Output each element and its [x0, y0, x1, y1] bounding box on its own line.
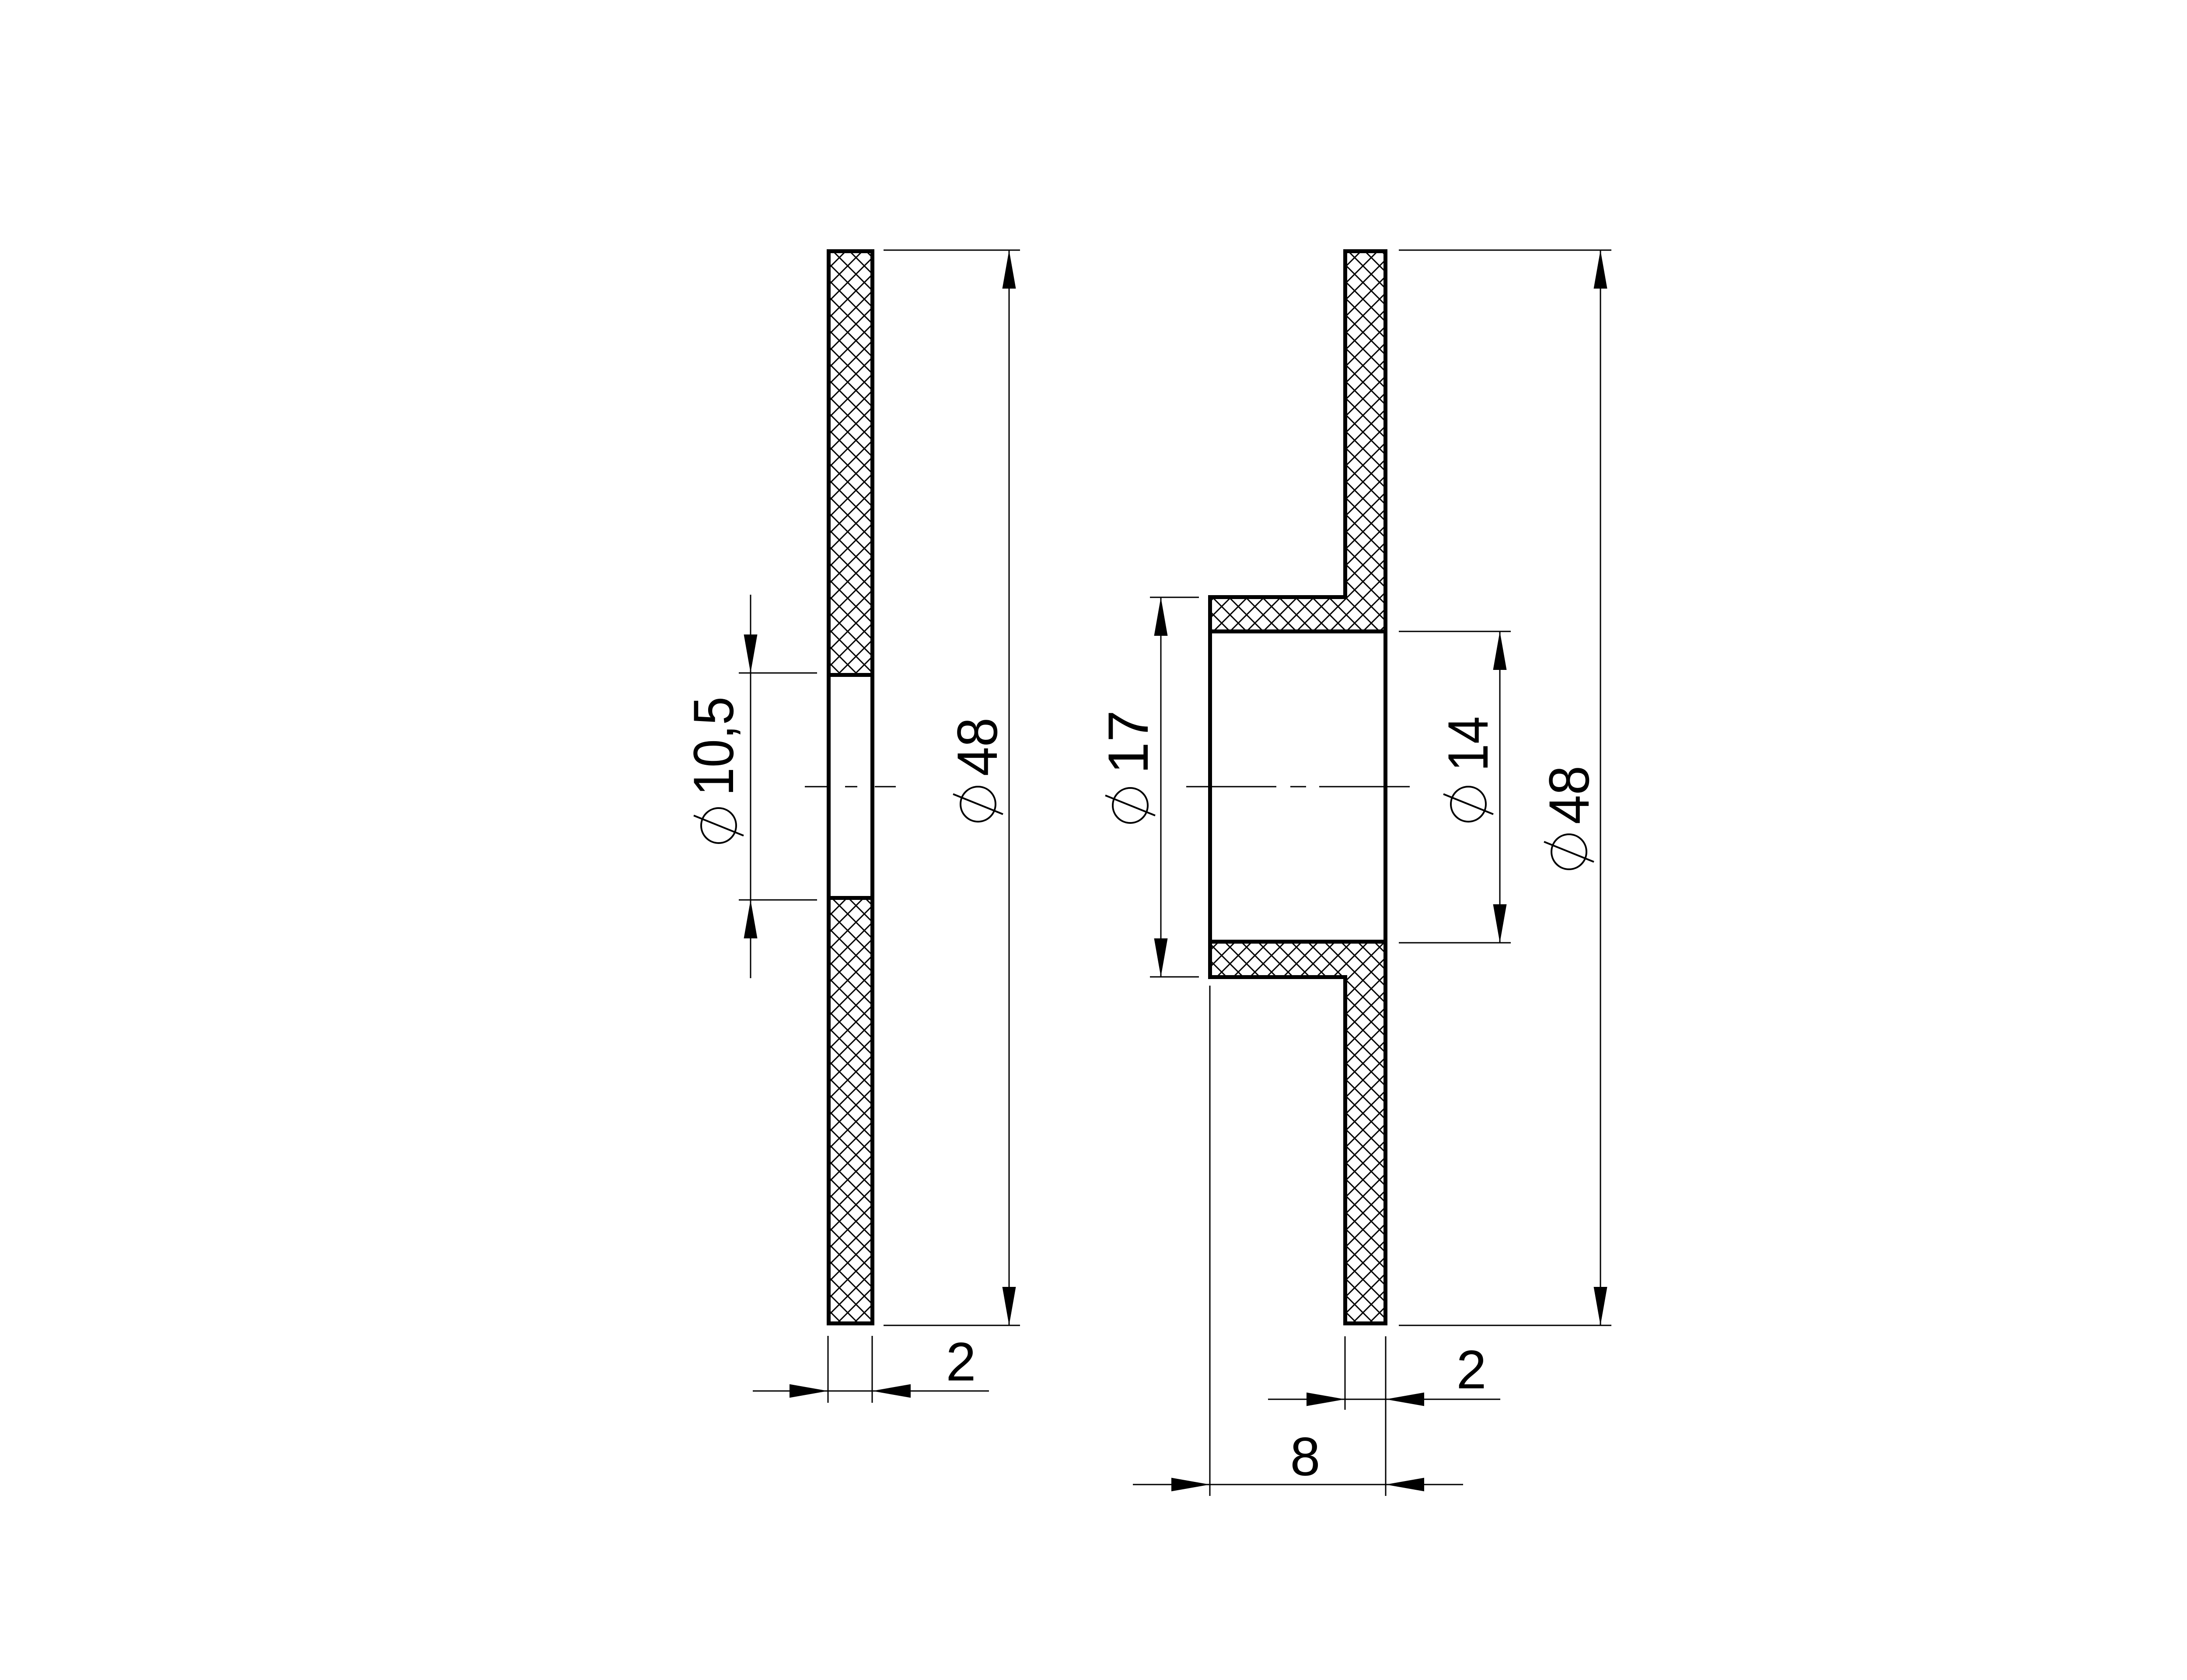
svg-text:48: 48	[945, 718, 1009, 776]
svg-text:2: 2	[946, 1332, 976, 1392]
svg-text:48: 48	[1537, 766, 1601, 824]
svg-text:2: 2	[1457, 1340, 1487, 1400]
svg-text:8: 8	[1290, 1427, 1321, 1487]
svg-text:14: 14	[1436, 716, 1500, 771]
svg-text:10,5: 10,5	[681, 697, 745, 796]
svg-text:17: 17	[1096, 710, 1160, 774]
